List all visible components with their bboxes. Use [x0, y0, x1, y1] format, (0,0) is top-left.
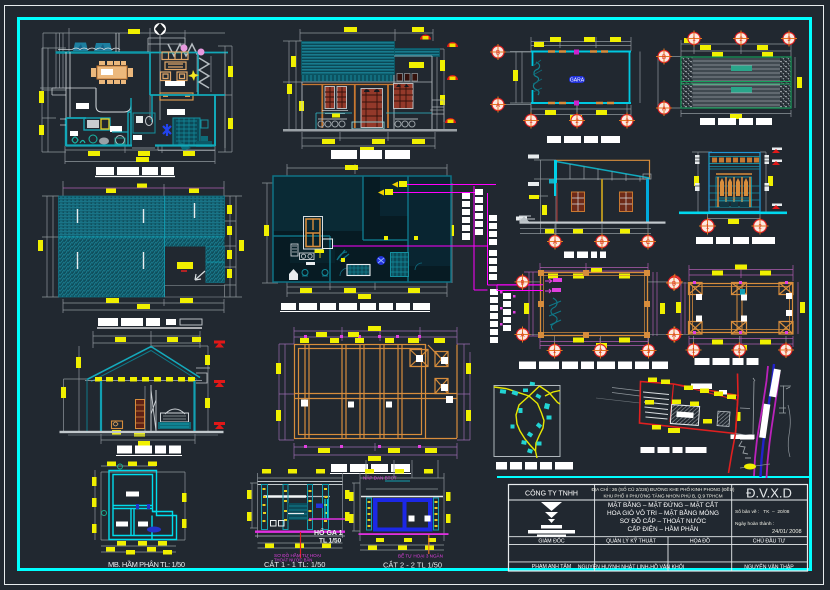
svg-text:PHẠM ANH TÂM: PHẠM ANH TÂM [532, 563, 571, 570]
svg-text:C: C [646, 240, 651, 246]
svg-text:MẶT BẰNG – MẶT ĐỨNG – MẶT CẮT: MẶT BẰNG – MẶT ĐỨNG – MẶT CẮT [608, 500, 718, 509]
svg-text:B: B [662, 55, 666, 61]
svg-text:CẮT 1 - 1 TL: 1/50: CẮT 1 - 1 TL: 1/50 [264, 560, 325, 569]
svg-text:MB. HẦM PHÂN TL: 1/50: MB. HẦM PHÂN TL: 1/50 [108, 559, 185, 569]
svg-text:A: A [662, 107, 666, 113]
svg-text:Ngày hoàn thành :: Ngày hoàn thành : [735, 521, 774, 527]
svg-text:A: A [520, 333, 524, 339]
svg-text:BỂ TỰ HOẠI 3 NGĂN: BỂ TỰ HOẠI 3 NGĂN [398, 553, 443, 559]
svg-text:NẮP ĐAN BTCT: NẮP ĐAN BTCT [363, 474, 397, 481]
svg-text:HOA GIÓ VÔ TRI – MẶT BẰNG MÓNG: HOA GIÓ VÔ TRI – MẶT BẰNG MÓNG [607, 508, 719, 517]
svg-text:NGUYỄN VĂN THẬP: NGUYỄN VĂN THẬP [744, 564, 794, 571]
svg-text:GIÁM ĐỐC: GIÁM ĐỐC [538, 538, 564, 545]
svg-text:KHU PHỐ II PHƯỜNG TĂNG NHƠN PH: KHU PHỐ II PHƯỜNG TĂNG NHƠN PHÚ B, Q.9 T… [603, 493, 722, 499]
svg-text:A: A [496, 103, 500, 109]
svg-text:24/01/ 2008: 24/01/ 2008 [772, 529, 802, 535]
svg-text:B: B [600, 240, 604, 246]
svg-text:Số bản vẽ : TK – 20/08: Số bản vẽ : TK – 20/08 [735, 509, 790, 515]
svg-text:HỌA ĐỒ: HỌA ĐỒ [690, 538, 710, 545]
svg-text:A: A [553, 240, 557, 246]
svg-text:NGUYỄN HUỲNH NHẬT LINH-HỒ VĂN: NGUYỄN HUỲNH NHẬT LINH-HỒ VĂN KHỐI [578, 564, 685, 571]
svg-text:B: B [520, 280, 524, 286]
svg-text:CÔNG TY TNHH: CÔNG TY TNHH [525, 489, 578, 498]
svg-text:A: A [672, 333, 676, 339]
svg-text:QUẢN LÝ KỸ THUẬT: QUẢN LÝ KỸ THUẬT [606, 538, 657, 545]
svg-text:B: B [496, 51, 500, 57]
svg-text:B: B [672, 282, 676, 288]
svg-text:CHỦ ĐẦU TƯ: CHỦ ĐẦU TƯ [753, 538, 786, 545]
svg-text:TL 1/50: TL 1/50 [319, 538, 342, 545]
svg-text:ĐỊA CHỈ : 26 (SỐ CŨ 2/226) ĐƯỜ: ĐỊA CHỈ : 26 (SỐ CŨ 2/226) ĐƯỜNG KHE PHỐ… [592, 486, 735, 492]
svg-text:CẮT 2 - 2 TL 1/50: CẮT 2 - 2 TL 1/50 [383, 561, 442, 570]
svg-text:Ð.V.X.D: Ð.V.X.D [746, 486, 792, 501]
svg-text:GARA: GARA [570, 78, 585, 84]
